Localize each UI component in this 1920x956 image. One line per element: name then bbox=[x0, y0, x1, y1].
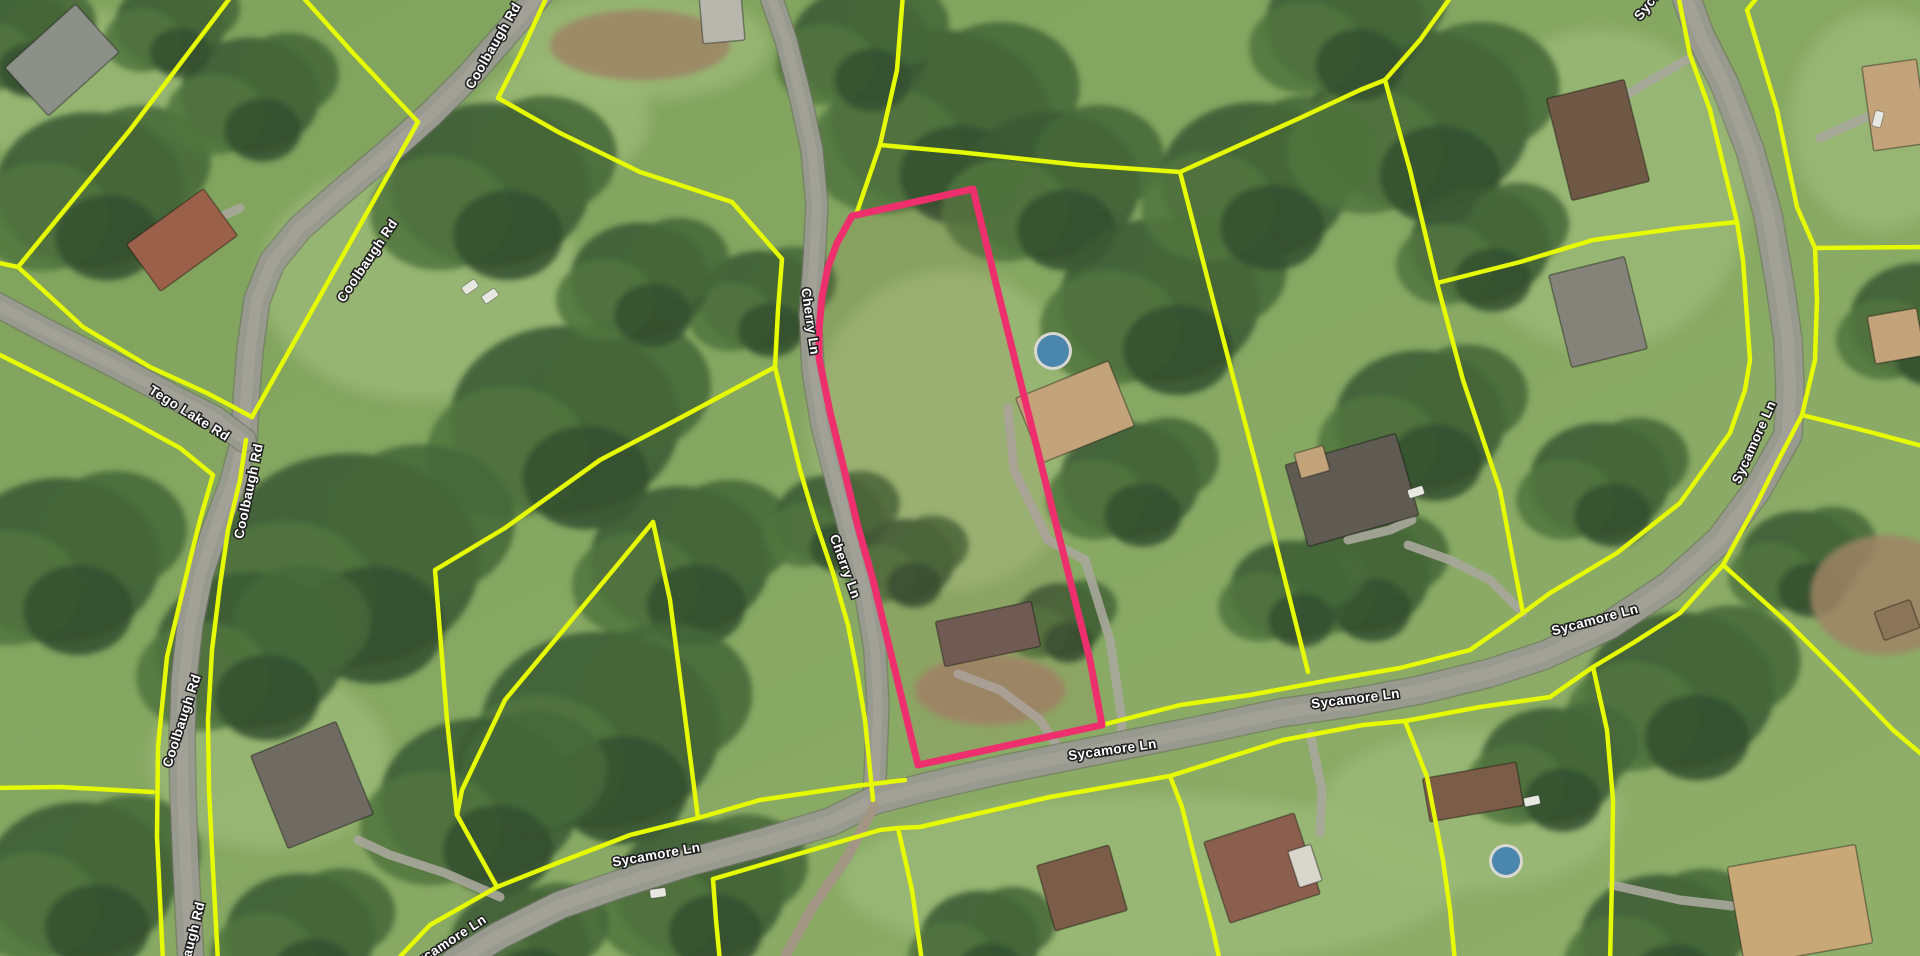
swimming-pool bbox=[1492, 847, 1520, 875]
tree-cluster bbox=[738, 303, 804, 357]
aerial-imagery-canvas[interactable]: Coolbaugh RdCoolbaugh RdCoolbaugh RdCool… bbox=[0, 0, 1920, 956]
house-roof bbox=[1867, 308, 1920, 364]
tree-cluster bbox=[453, 190, 563, 280]
house-roof bbox=[699, 0, 745, 44]
tree-cluster bbox=[1645, 695, 1750, 781]
swimming-pool bbox=[1037, 335, 1069, 367]
tree-cluster bbox=[23, 565, 133, 655]
tree-cluster bbox=[614, 283, 691, 346]
car bbox=[649, 887, 666, 898]
aerial-parcel-map-view[interactable]: Coolbaugh RdCoolbaugh RdCoolbaugh RdCool… bbox=[0, 0, 1920, 956]
tree-cluster bbox=[1220, 185, 1325, 271]
tree-cluster bbox=[224, 98, 301, 161]
tree-cluster bbox=[1454, 248, 1531, 311]
parcel-boundary-line bbox=[1815, 247, 1920, 248]
tree-cluster bbox=[215, 655, 320, 741]
tree-cluster bbox=[1104, 483, 1181, 546]
